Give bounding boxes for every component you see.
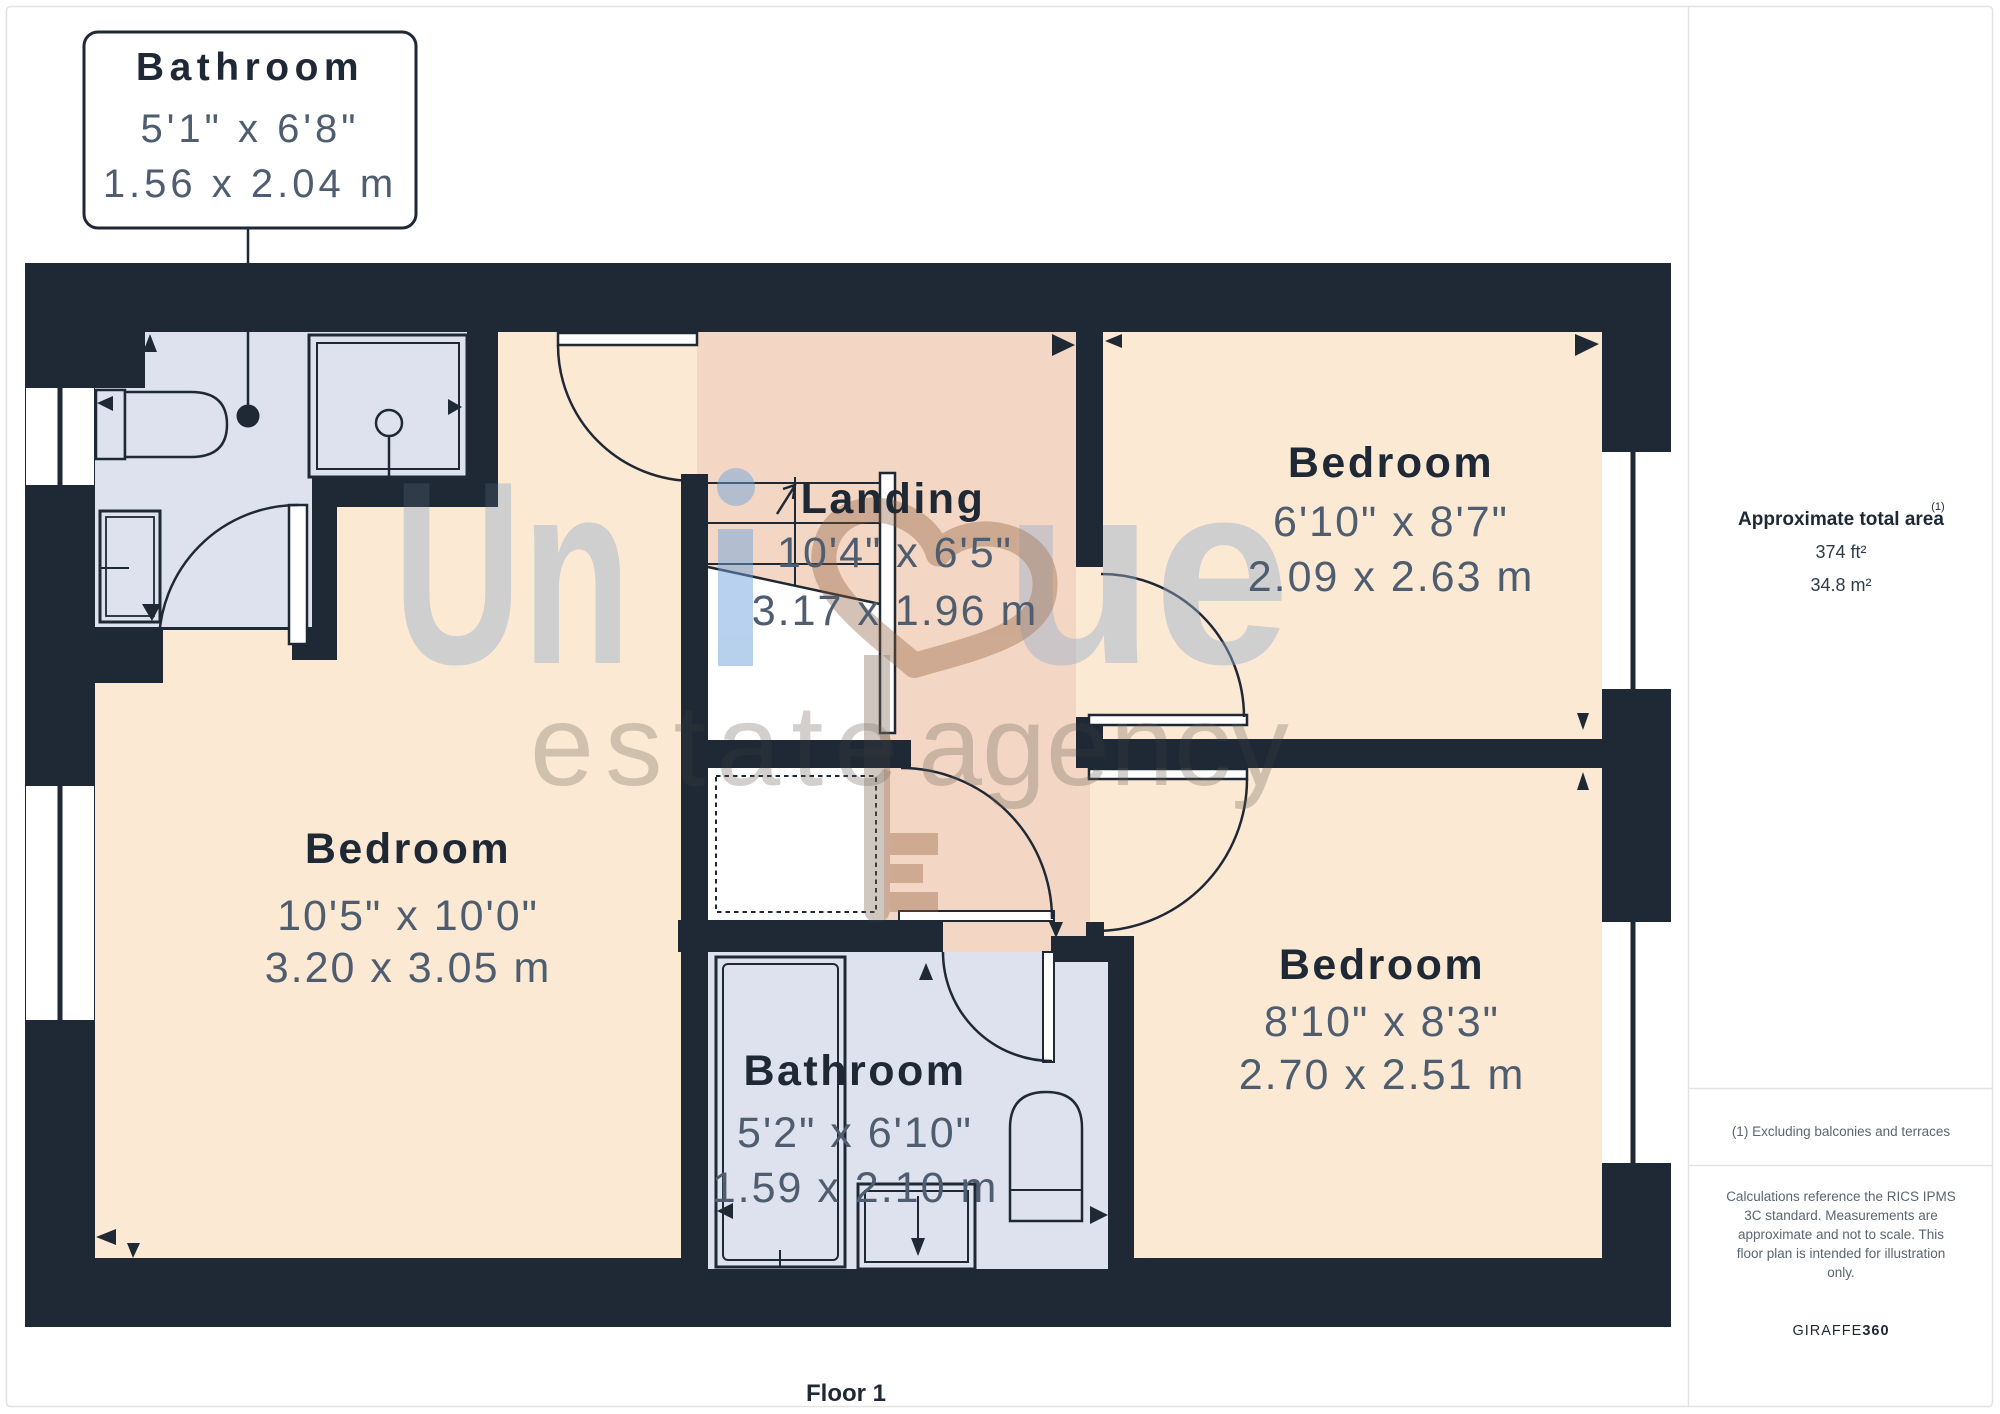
svg-text:Landing: Landing bbox=[801, 475, 986, 523]
svg-text:(1): (1) bbox=[1931, 501, 1944, 513]
svg-text:374 ft²: 374 ft² bbox=[1815, 542, 1866, 562]
svg-text:Calculations reference the RIC: Calculations reference the RICS IPMS bbox=[1726, 1189, 1956, 1204]
svg-text:34.8 m²: 34.8 m² bbox=[1810, 575, 1871, 595]
svg-text:only.: only. bbox=[1827, 1265, 1855, 1280]
svg-text:1.59 x 2.10 m: 1.59 x 2.10 m bbox=[712, 1164, 999, 1212]
svg-text:Floor 1: Floor 1 bbox=[806, 1380, 886, 1407]
svg-text:3.20 x 3.05 m: 3.20 x 3.05 m bbox=[265, 944, 552, 992]
svg-text:GIRAFFE360: GIRAFFE360 bbox=[1792, 1323, 1889, 1339]
svg-text:approximate and not to scale.: approximate and not to scale. This bbox=[1738, 1227, 1944, 1242]
svg-text:3.17 x 1.96 m: 3.17 x 1.96 m bbox=[752, 587, 1039, 635]
svg-text:Bedroom: Bedroom bbox=[1279, 941, 1485, 989]
svg-text:8'10" x 8'3": 8'10" x 8'3" bbox=[1264, 998, 1500, 1046]
svg-text:floor plan is intended for ill: floor plan is intended for illustration bbox=[1737, 1246, 1946, 1261]
svg-text:10'4" x 6'5": 10'4" x 6'5" bbox=[777, 529, 1013, 577]
svg-text:Bedroom: Bedroom bbox=[305, 825, 511, 873]
svg-text:Bedroom: Bedroom bbox=[1288, 439, 1494, 487]
svg-text:5'1" x 6'8": 5'1" x 6'8" bbox=[141, 107, 360, 151]
svg-text:(1) Excluding balconies and te: (1) Excluding balconies and terraces bbox=[1732, 1124, 1951, 1139]
svg-text:10'5" x 10'0": 10'5" x 10'0" bbox=[277, 892, 539, 940]
svg-text:2.70 x 2.51 m: 2.70 x 2.51 m bbox=[1239, 1051, 1526, 1099]
svg-text:Bathroom: Bathroom bbox=[743, 1047, 966, 1095]
svg-text:Bathroom: Bathroom bbox=[136, 46, 364, 89]
svg-text:Approximate total area: Approximate total area bbox=[1738, 509, 1944, 530]
svg-text:5'2" x 6'10": 5'2" x 6'10" bbox=[737, 1109, 973, 1157]
svg-text:3C standard. Measurements are: 3C standard. Measurements are bbox=[1744, 1208, 1938, 1223]
svg-text:6'10" x 8'7": 6'10" x 8'7" bbox=[1273, 498, 1509, 546]
svg-text:2.09 x 2.63 m: 2.09 x 2.63 m bbox=[1248, 553, 1535, 601]
svg-text:1.56 x 2.04 m: 1.56 x 2.04 m bbox=[103, 162, 397, 206]
